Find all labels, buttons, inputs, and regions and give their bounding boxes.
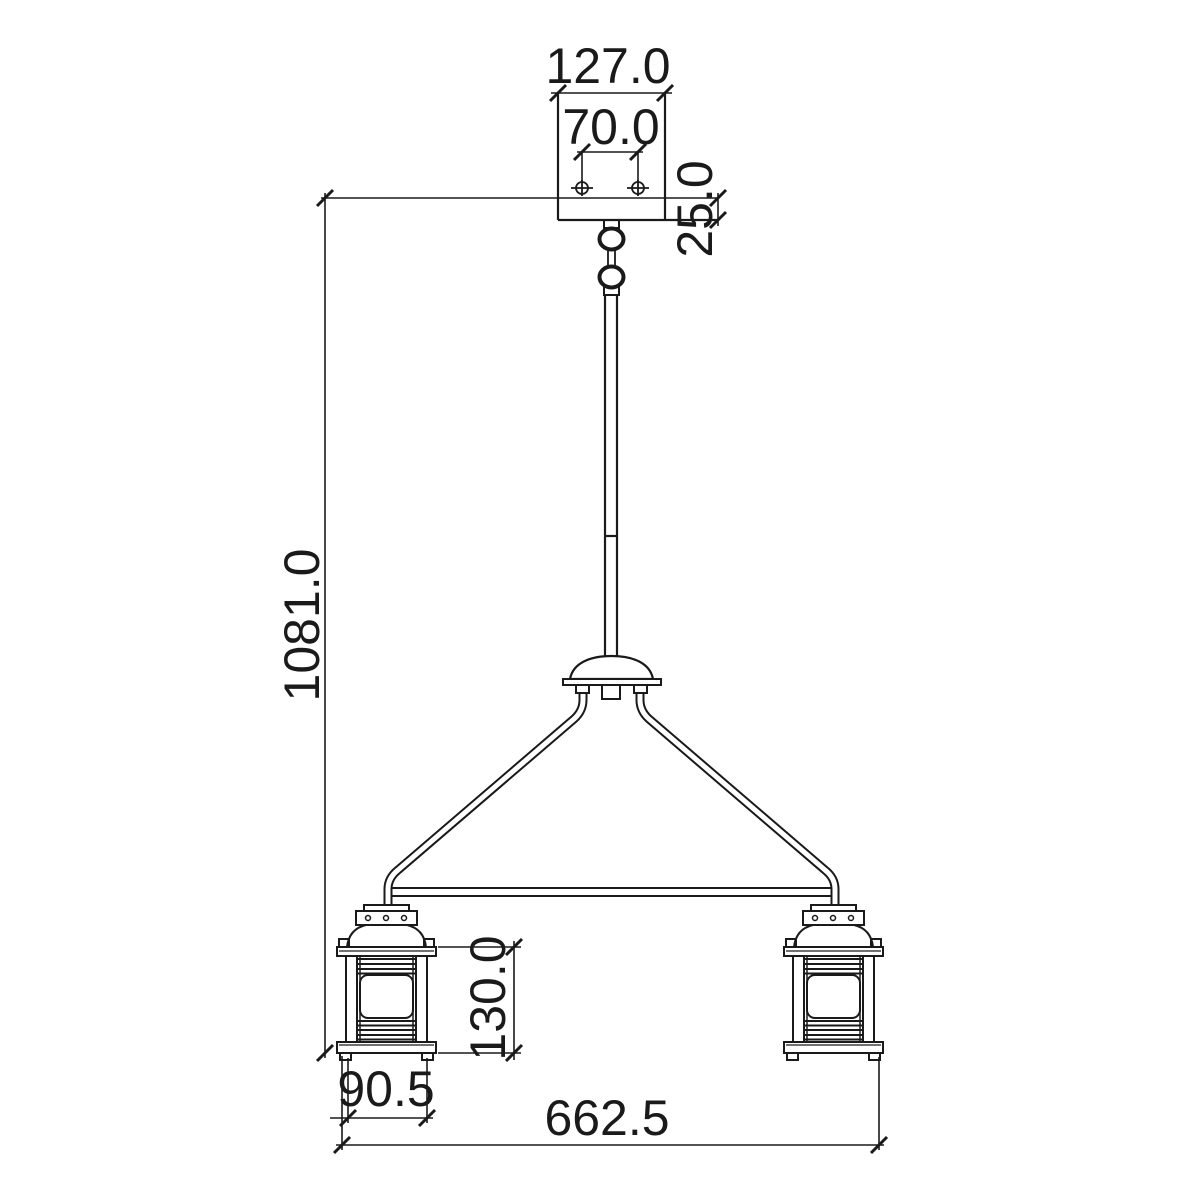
hanging-chain	[600, 220, 624, 295]
technical-drawing-canvas: 127.0 70.0 25.0 1081.0 130.0 90.5 662.5	[0, 0, 1200, 1200]
cross-bar	[388, 888, 835, 896]
stem-rod	[605, 295, 617, 657]
center-hub	[563, 656, 661, 699]
dim-label-overall-height: 1081.0	[277, 549, 327, 702]
right-arm	[640, 691, 835, 906]
left-lantern	[337, 905, 436, 1060]
right-lantern	[784, 905, 883, 1060]
dim-label-canopy-height: 25.0	[670, 160, 720, 257]
dim-label-canopy-width: 127.0	[545, 41, 670, 91]
dim-label-overall-width: 662.5	[544, 1093, 669, 1143]
pendant-light-line-drawing	[0, 0, 1200, 1200]
mount-screws	[571, 180, 649, 196]
dim-label-screw-spacing: 70.0	[562, 102, 659, 152]
dim-label-lantern-height: 130.0	[463, 935, 513, 1060]
left-arm	[388, 691, 583, 906]
dimension-lines	[321, 93, 884, 1150]
dim-label-lantern-width: 90.5	[337, 1064, 434, 1114]
